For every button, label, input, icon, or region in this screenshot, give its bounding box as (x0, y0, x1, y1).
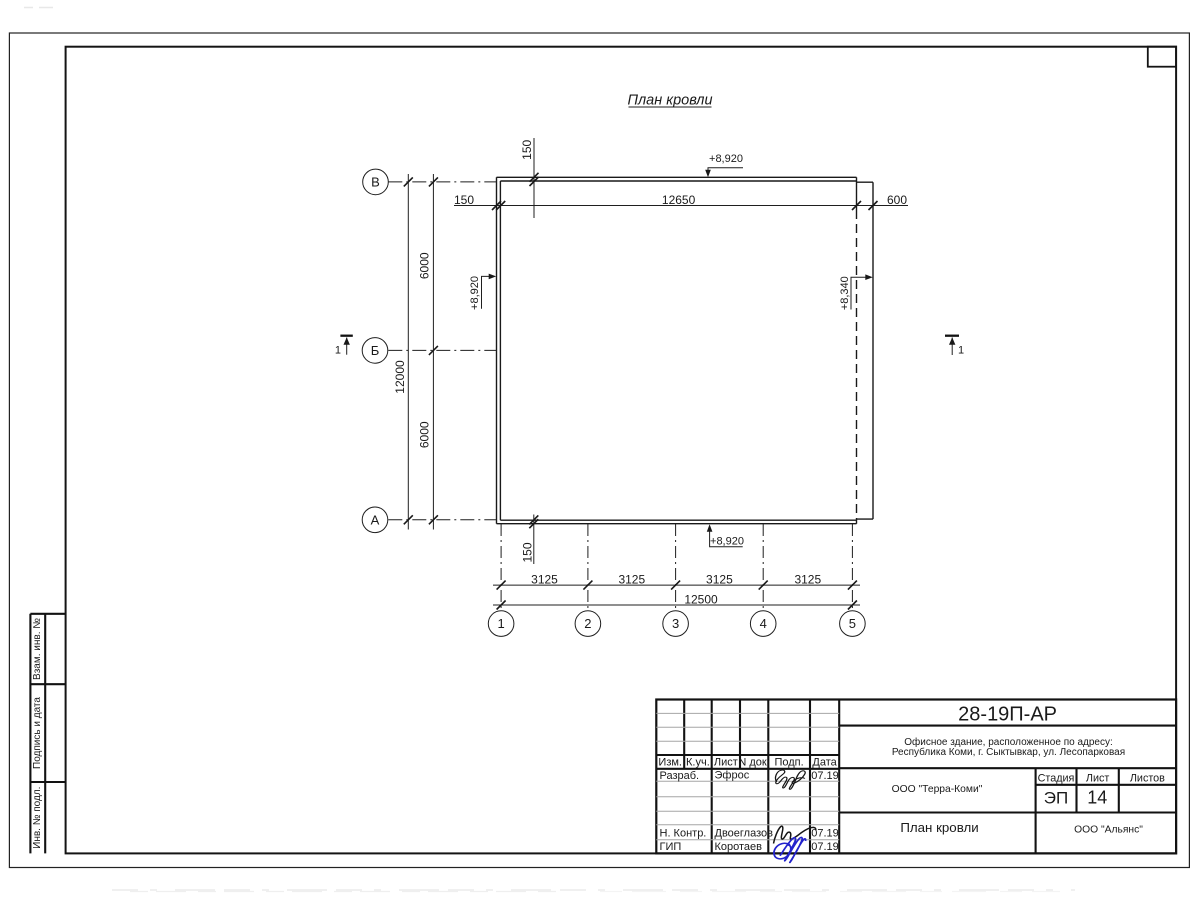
svg-text:Стадия: Стадия (1038, 772, 1075, 784)
svg-text:Б: Б (371, 343, 380, 358)
svg-text:28-19П-АР: 28-19П-АР (958, 704, 1057, 726)
svg-text:N док.: N док. (738, 757, 769, 769)
svg-text:Подп.: Подп. (774, 757, 803, 769)
svg-text:Дата: Дата (812, 757, 837, 769)
svg-text:07.19: 07.19 (811, 841, 839, 853)
svg-text:Разраб.: Разраб. (660, 770, 700, 782)
svg-text:К.уч.: К.уч. (686, 757, 710, 769)
svg-text:Взам. инв. №: Взам. инв. № (32, 618, 43, 680)
svg-text:6000: 6000 (417, 421, 431, 448)
svg-text:14: 14 (1087, 788, 1107, 808)
svg-text:Инв. № подл.: Инв. № подл. (32, 787, 43, 849)
svg-text:Подпись и дата: Подпись и дата (32, 697, 43, 769)
svg-text:Изм.: Изм. (658, 757, 682, 769)
svg-text:600: 600 (887, 193, 907, 207)
svg-text:3125: 3125 (618, 573, 645, 587)
svg-text:1: 1 (335, 345, 341, 357)
svg-text:Лист: Лист (1086, 772, 1110, 784)
svg-text:А: А (371, 512, 380, 527)
svg-text:2: 2 (584, 616, 591, 631)
svg-text:Двоеглазов: Двоеглазов (715, 827, 774, 839)
svg-text:Республика Коми, г. Сыктывкар,: Республика Коми, г. Сыктывкар, ул. Лесоп… (892, 746, 1125, 758)
svg-text:План кровли: План кровли (900, 820, 978, 835)
svg-text:+8,920: +8,920 (469, 276, 481, 310)
svg-text:+8,920: +8,920 (709, 153, 743, 165)
svg-text:План кровли: План кровли (627, 93, 712, 109)
svg-text:Коротаев: Коротаев (715, 841, 763, 853)
svg-text:ООО "Терра-Коми": ООО "Терра-Коми" (892, 784, 983, 795)
svg-text:12650: 12650 (662, 193, 696, 207)
svg-text:+8,920: +8,920 (710, 535, 744, 547)
svg-text:150: 150 (520, 139, 534, 159)
svg-text:Эфрос: Эфрос (715, 770, 750, 782)
svg-text:1: 1 (958, 345, 964, 357)
svg-text:150: 150 (454, 193, 474, 207)
svg-text:+8,340: +8,340 (839, 276, 851, 310)
svg-text:ЭП: ЭП (1044, 789, 1068, 808)
svg-text:07.19: 07.19 (811, 770, 839, 782)
svg-text:3125: 3125 (794, 573, 821, 587)
svg-text:12000: 12000 (393, 360, 407, 394)
svg-text:Лист: Лист (714, 757, 738, 769)
svg-text:В: В (371, 175, 380, 190)
svg-text:5: 5 (849, 616, 856, 631)
svg-text:ГИП: ГИП (660, 841, 682, 853)
svg-text:1: 1 (497, 616, 504, 631)
svg-text:12500: 12500 (684, 593, 718, 607)
svg-text:150: 150 (520, 542, 534, 562)
svg-text:ООО "Альянс": ООО "Альянс" (1074, 824, 1143, 835)
svg-text:3: 3 (672, 616, 679, 631)
svg-text:Листов: Листов (1130, 772, 1165, 784)
svg-text:3125: 3125 (531, 573, 558, 587)
svg-text:6000: 6000 (417, 252, 431, 279)
svg-text:4: 4 (760, 616, 767, 631)
svg-text:Н. Контр.: Н. Контр. (660, 827, 707, 839)
svg-text:3125: 3125 (706, 573, 733, 587)
